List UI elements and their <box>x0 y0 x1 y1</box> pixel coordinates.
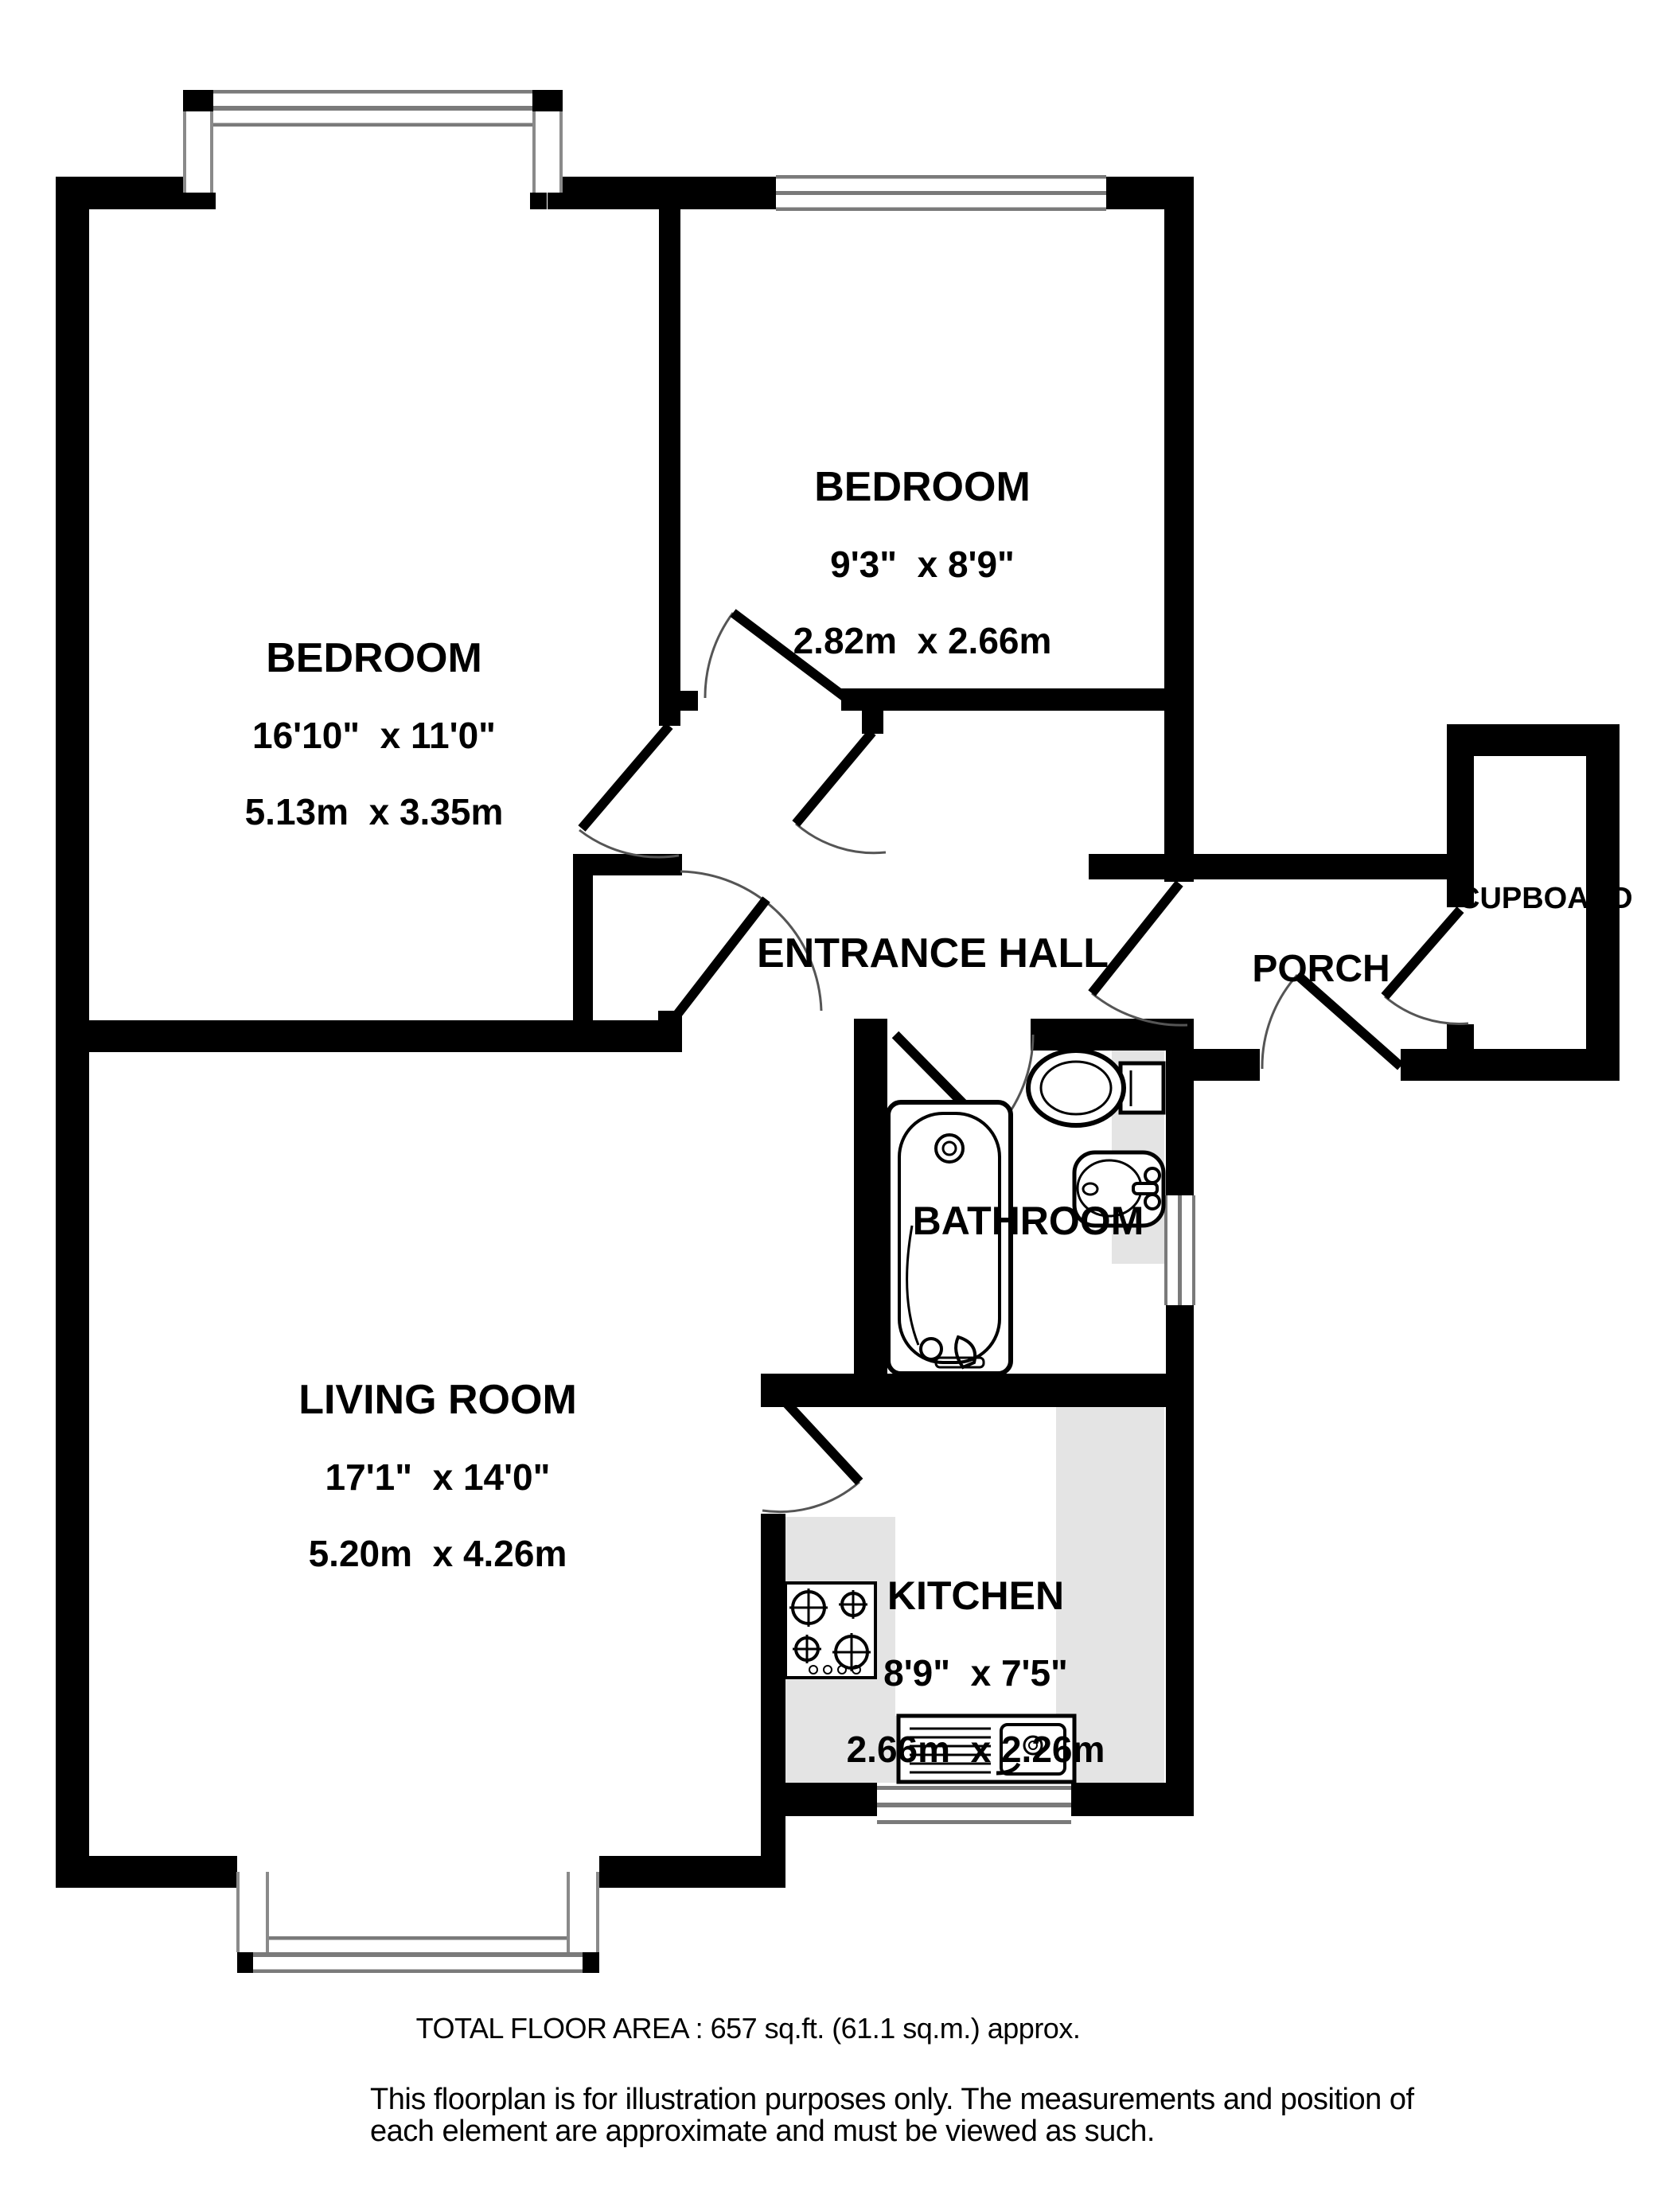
room-dims-imperial: 17'1" x 14'0" <box>298 1453 577 1501</box>
kitchen-label: KITCHEN 8'9" x 7'5" 2.66m x 2.26m <box>847 1542 1105 1802</box>
door-arc <box>796 824 886 853</box>
door-leaf-cupboard <box>1385 910 1460 996</box>
floorplan: CUPBOARD <box>0 0 1680 2187</box>
room-dims-metric: 5.13m x 3.35m <box>245 788 504 836</box>
toilet-icon <box>1028 1051 1164 1125</box>
bedroom2-label: BEDROOM 9'3" x 8'9" 2.82m x 2.66m <box>793 434 1052 693</box>
room-dims-imperial: 9'3" x 8'9" <box>793 540 1052 588</box>
door-arc <box>1092 993 1187 1025</box>
living-room-label: LIVING ROOM 17'1" x 14'0" 5.20m x 4.26m <box>298 1347 577 1606</box>
door-leaf-living <box>676 899 766 1016</box>
room-name: LIVING ROOM <box>298 1375 577 1425</box>
door-leaf-bedroom1 <box>582 726 669 828</box>
door-arc <box>1385 996 1468 1023</box>
bedroom1-label: BEDROOM 16'10" x 11'0" 5.13m x 3.35m <box>245 605 504 864</box>
bathroom-label: BATHROOM <box>913 1198 1144 1244</box>
room-dims-imperial: 16'10" x 11'0" <box>245 711 504 759</box>
disclaimer-line-1: This floorplan is for illustration purpo… <box>370 2084 1414 2115</box>
total-floor-area: TOTAL FLOOR AREA : 657 sq.ft. (61.1 sq.m… <box>318 2012 1178 2045</box>
entrance-hall-label: ENTRANCE HALL <box>757 930 1109 977</box>
porch-label: PORCH <box>1252 947 1390 991</box>
room-name: KITCHEN <box>847 1571 1105 1620</box>
door-arc <box>762 1482 859 1512</box>
door-leaf-hall <box>796 732 872 824</box>
room-dims-metric: 2.66m x 2.26m <box>847 1725 1105 1773</box>
room-dims-metric: 5.20m x 4.26m <box>298 1530 577 1577</box>
door-arc <box>579 830 679 857</box>
disclaimer-line-2: each element are approximate and must be… <box>370 2115 1155 2147</box>
room-dims-imperial: 8'9" x 7'5" <box>847 1649 1105 1697</box>
room-name: BEDROOM <box>793 462 1052 512</box>
doors-and-fixtures <box>0 0 1680 2187</box>
door-leaf-kitchen <box>778 1394 859 1482</box>
room-name: BEDROOM <box>245 633 504 683</box>
door-arc <box>705 613 733 698</box>
room-dims-metric: 2.82m x 2.66m <box>793 617 1052 665</box>
